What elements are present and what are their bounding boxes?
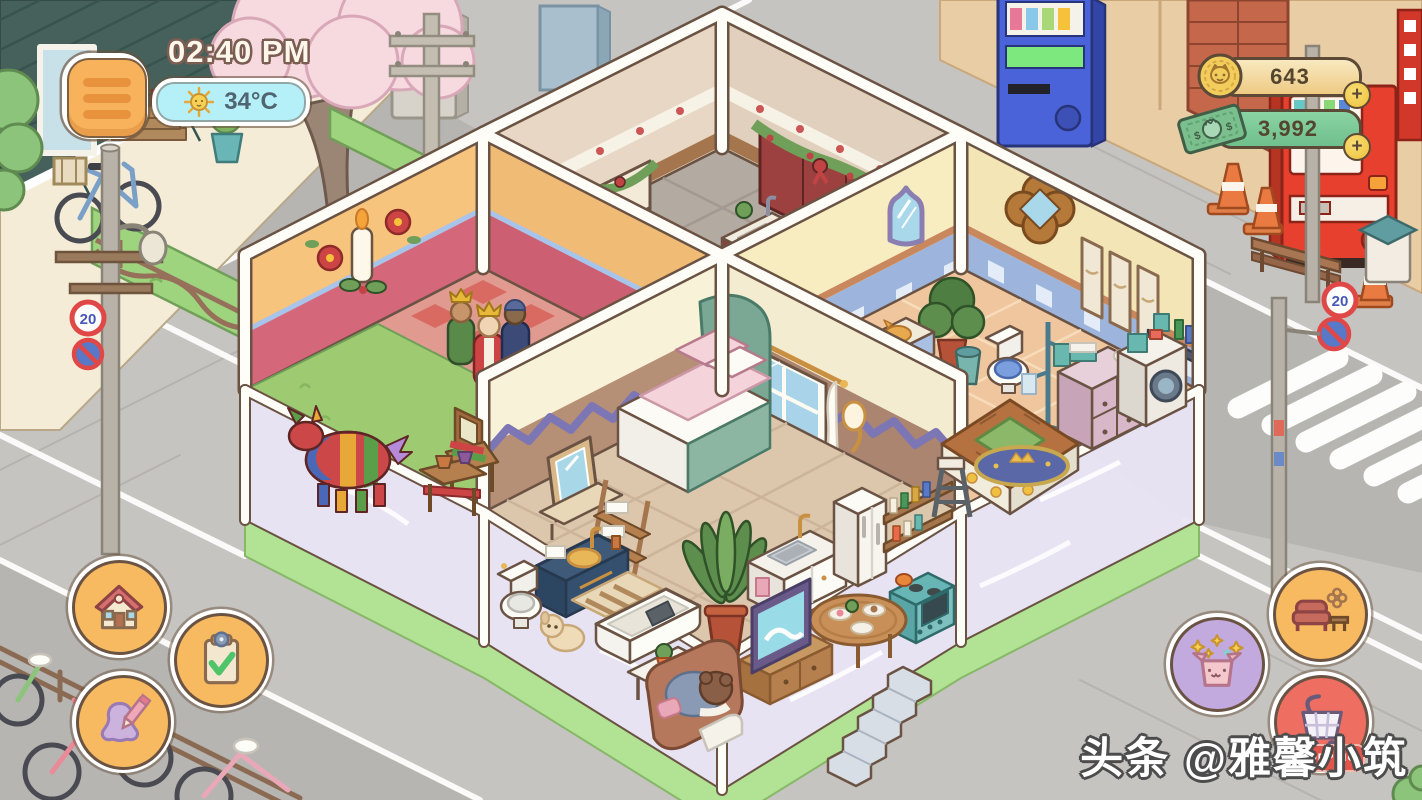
add-coins-button[interactable]: +: [1343, 81, 1371, 109]
trash-bin: [1360, 216, 1416, 282]
home-button[interactable]: [68, 556, 170, 658]
svg-text:20: 20: [80, 311, 97, 328]
hamburger-menu-icon: [67, 58, 147, 138]
sun-icon: [184, 87, 214, 117]
tasks-button[interactable]: [170, 609, 272, 711]
washing-machine: [1118, 330, 1186, 426]
street-lamp: [140, 232, 166, 264]
coins-counter[interactable]: 643 +: [1218, 57, 1362, 97]
cat-coin-icon: [1195, 51, 1245, 101]
clock-time: 02:40 PM: [168, 34, 310, 70]
no-parking-sign: [74, 340, 102, 368]
weather-widget[interactable]: 34°C: [152, 78, 310, 126]
character-edit-button[interactable]: [72, 671, 174, 773]
speed-limit-sign: 20: [72, 302, 104, 334]
temperature-value: 34°C: [224, 88, 278, 116]
svg-text:20: 20: [1332, 293, 1349, 310]
coins-amount: 643: [1270, 64, 1310, 90]
arched-mirror: [890, 188, 922, 244]
fridge: [834, 488, 886, 586]
cash-amount: 3,992: [1258, 116, 1318, 142]
add-cash-button[interactable]: +: [1343, 133, 1371, 161]
furniture-decor-button[interactable]: [1269, 563, 1371, 665]
menu-button[interactable]: [62, 53, 148, 139]
character-edit-icon: [92, 691, 154, 753]
red-sign-tower: [1398, 10, 1422, 140]
crown-rug: [976, 447, 1068, 485]
furniture-icon: [1288, 582, 1352, 646]
home-icon: [88, 576, 150, 638]
gift-box-icon: [1185, 632, 1249, 696]
king-green: [448, 289, 474, 364]
blue-vending-machine: [998, 0, 1105, 146]
tasks-clipboard-icon: [190, 629, 252, 691]
watermark-text: 头条 @雅馨小筑: [1080, 724, 1408, 786]
game-screen: 20: [0, 0, 1422, 800]
gift-box-button[interactable]: [1166, 613, 1268, 715]
cash-counter[interactable]: $ $ 3,992 +: [1214, 109, 1362, 149]
